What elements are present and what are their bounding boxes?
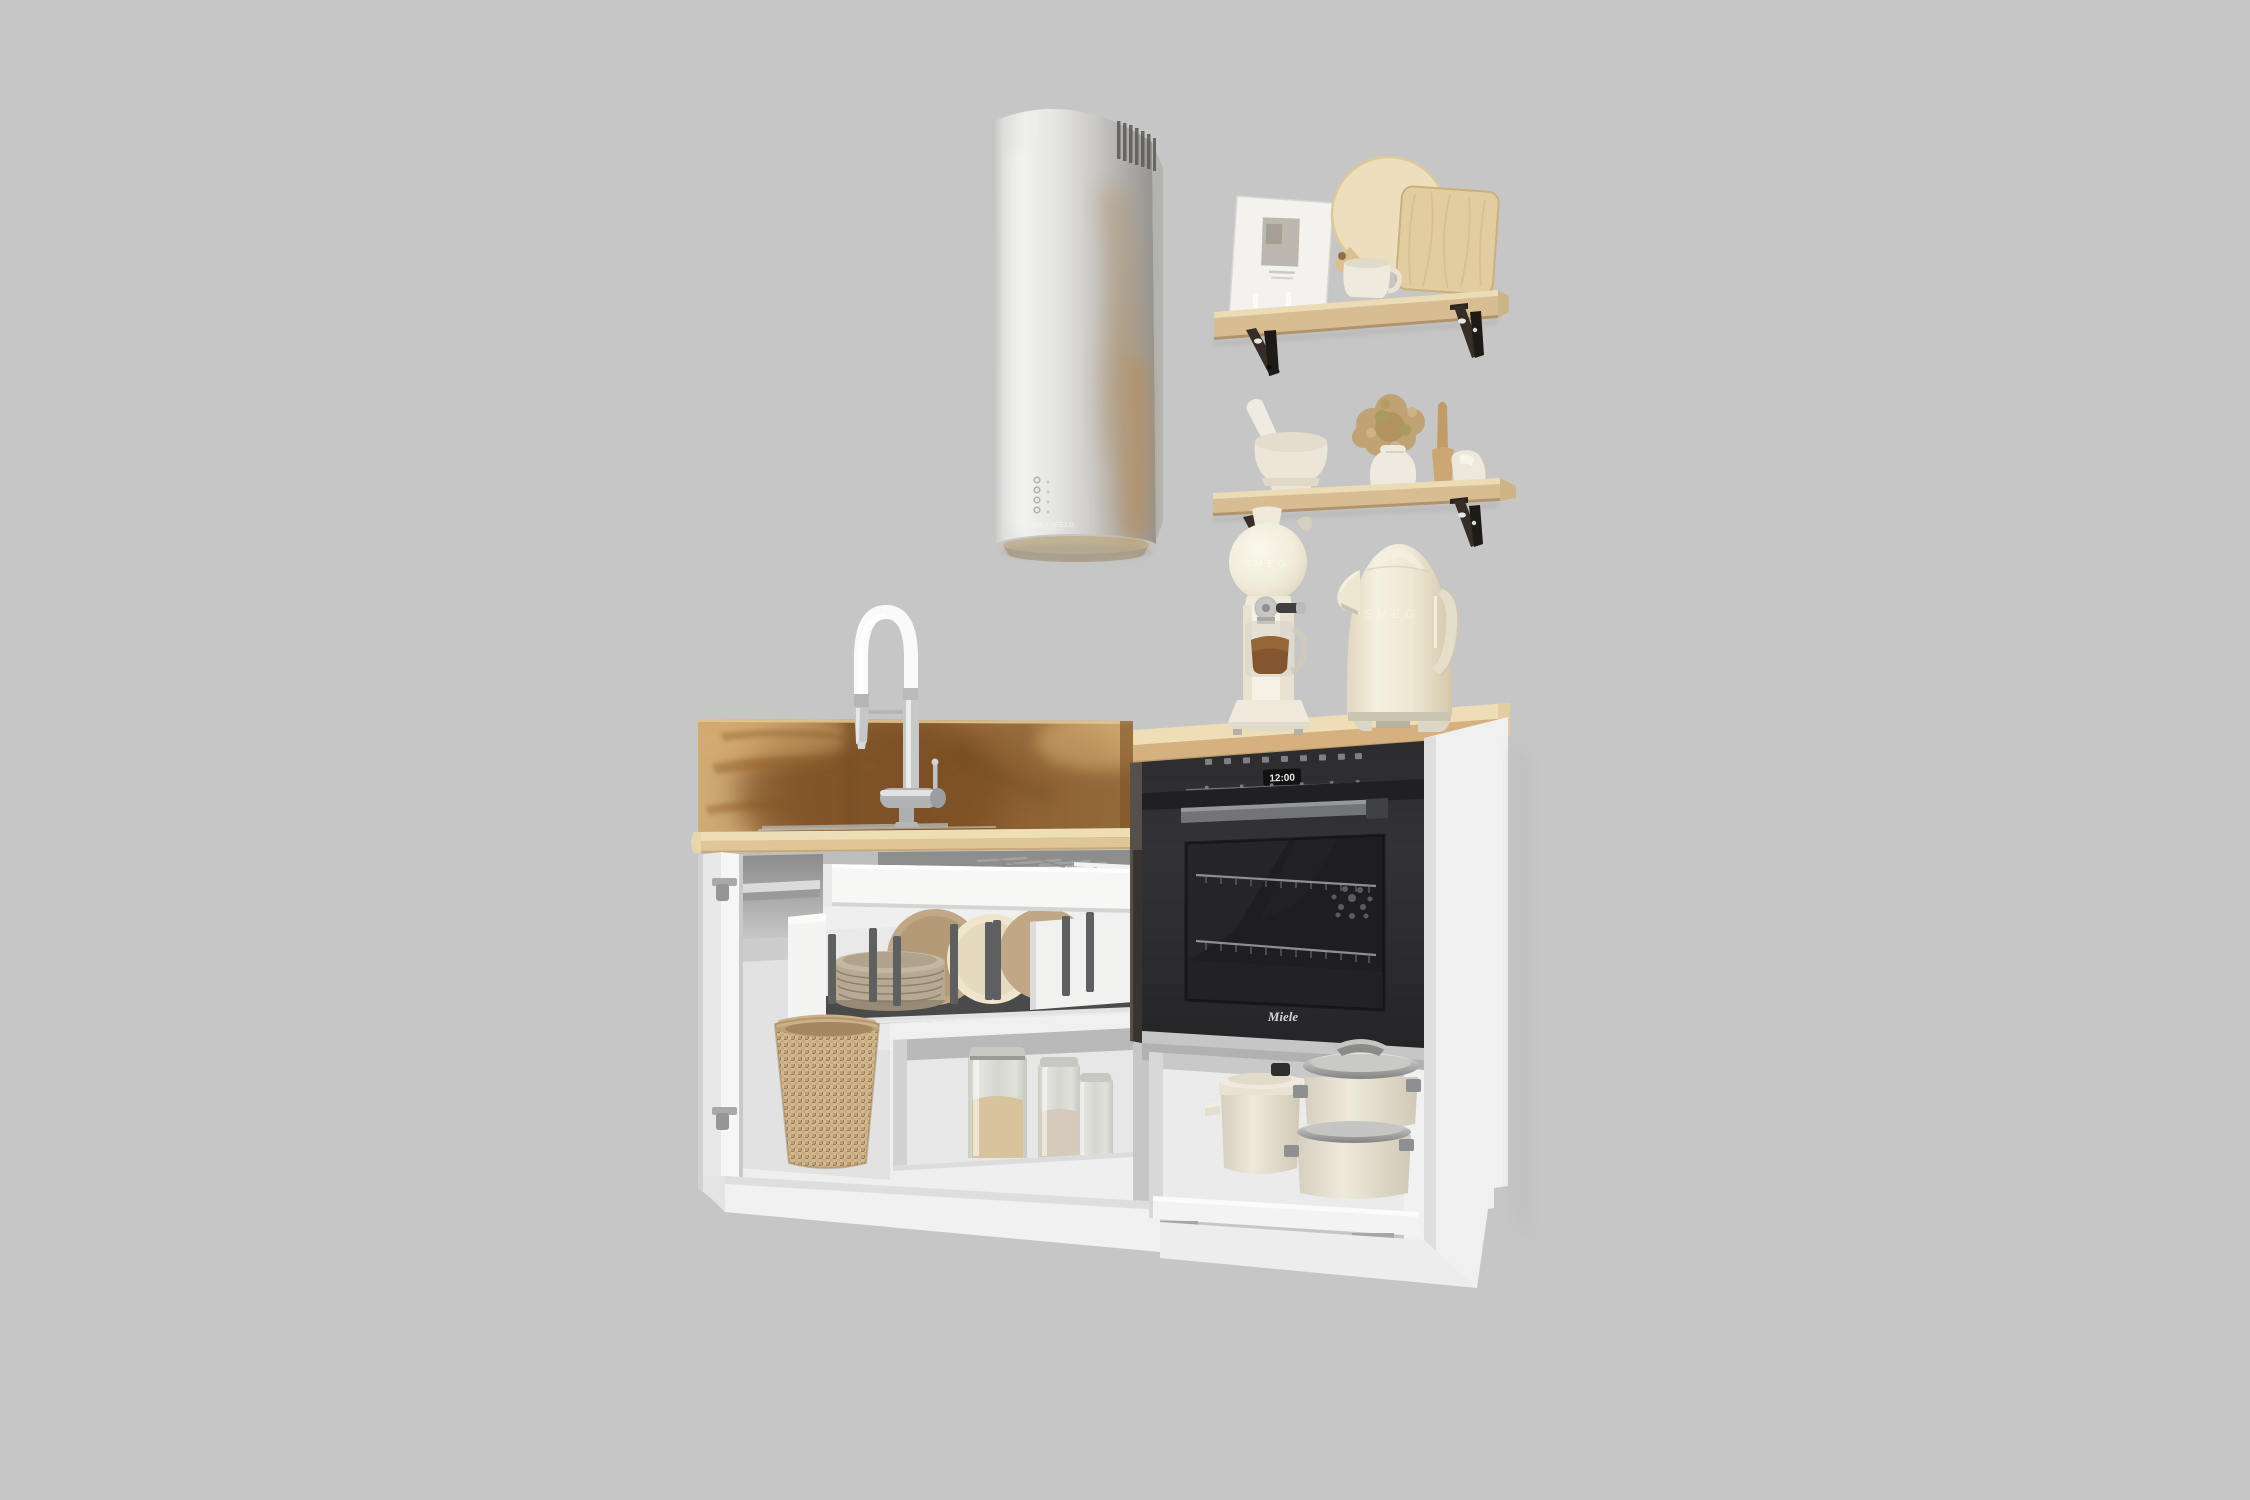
svg-text:◎ MAUNFELD: ◎ MAUNFELD xyxy=(1023,522,1075,529)
svg-text:12:00: 12:00 xyxy=(1269,773,1295,785)
svg-text:Miele: Miele xyxy=(1267,1009,1299,1024)
svg-text:SMEG: SMEG xyxy=(1244,559,1289,570)
svg-text:SMEG: SMEG xyxy=(1364,607,1419,621)
